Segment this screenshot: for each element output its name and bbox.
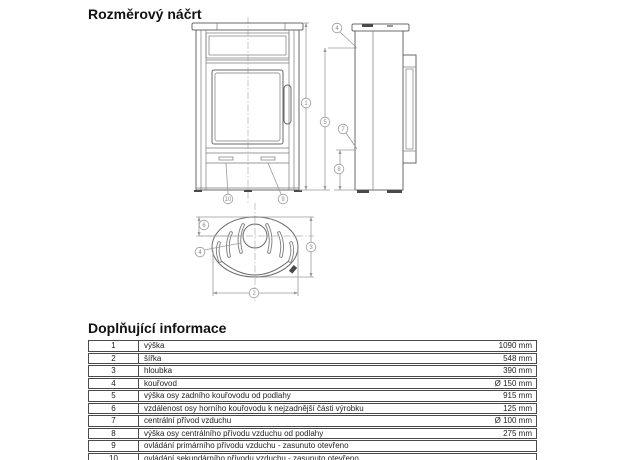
row-value: 125 mm: [503, 404, 536, 413]
row-number: 6: [89, 404, 139, 414]
row-value: 548 mm: [503, 354, 536, 363]
table-row: 1 výška 1090 mm: [88, 340, 537, 352]
info-section-title: Doplňující informace: [88, 320, 226, 336]
flue-opening: [362, 24, 373, 27]
row-label: kouřovod: [139, 379, 495, 388]
callout-secondary-air-control: 10: [223, 163, 233, 204]
side-top-plate: [352, 24, 409, 31]
table-row: 4 kouřovod Ø 150 mm: [88, 378, 537, 390]
row-label: vzdálenost osy horního kouřovodu k nejza…: [139, 404, 503, 413]
front-upper-panel: [206, 33, 289, 58]
callout-primary-air-control: 9: [268, 163, 288, 204]
top-door-handle: [289, 265, 297, 274]
table-row: 9 ovládání primárního přívodu vzduchu - …: [88, 440, 537, 452]
dim-width: 2: [213, 250, 298, 298]
row-number: 3: [89, 366, 139, 376]
row-number: 8: [89, 429, 139, 439]
row-label: ovládání sekundárního přívodu vzduchu - …: [139, 454, 532, 460]
table-row: 10 ovládání sekundárního přívodu vzduchu…: [88, 453, 537, 460]
row-value: 915 mm: [503, 391, 536, 400]
row-number: 1: [89, 341, 139, 351]
row-number: 4: [89, 379, 139, 389]
row-label: výška osy zadního kouřovodu od podlahy: [139, 391, 503, 400]
row-value: 1090 mm: [499, 341, 536, 350]
callout-10-label: 10: [225, 197, 232, 203]
dimensional-drawing: 10 9 1 5 4: [0, 0, 624, 316]
primary-air-control: [261, 157, 275, 160]
side-door-frame: [403, 55, 416, 163]
table-row: 5 výška osy zadního kouřovodu od podlahy…: [88, 390, 537, 402]
table-row: 2 šířka 548 mm: [88, 353, 537, 365]
front-top-plate: [192, 23, 303, 30]
top-view: [196, 203, 314, 302]
front-door-glass: [212, 70, 283, 144]
row-number: 2: [89, 354, 139, 364]
row-label: ovládání primárního přívodu vzduchu - za…: [139, 441, 532, 450]
row-label: výška osy centrálního přívodu vzduchu od…: [139, 429, 503, 438]
door-handle: [284, 85, 291, 124]
row-value: Ø 100 mm: [495, 416, 536, 425]
info-table: 1 výška 1090 mm 2 šířka 548 mm 3 hloubka…: [88, 340, 537, 460]
row-number: 10: [89, 454, 139, 460]
secondary-air-control: [219, 157, 233, 160]
row-value: Ø 150 mm: [495, 379, 536, 388]
table-row: 7 centrální přívod vzduchu Ø 100 mm: [88, 415, 537, 427]
side-view: [352, 24, 416, 193]
row-number: 5: [89, 391, 139, 401]
table-row: 3 hloubka 390 mm: [88, 365, 537, 377]
row-value: 390 mm: [503, 366, 536, 375]
table-row: 6 vzdálenost osy horního kouřovodu k nej…: [88, 403, 537, 415]
row-label: hloubka: [139, 366, 503, 375]
row-label: centrální přívod vzduchu: [139, 416, 495, 425]
row-label: šířka: [139, 354, 503, 363]
table-row: 8 výška osy centrálního přívodu vzduchu …: [88, 428, 537, 440]
side-body: [355, 31, 403, 190]
row-number: 7: [89, 416, 139, 426]
front-view: [192, 17, 303, 203]
row-number: 9: [89, 441, 139, 451]
row-label: výška: [139, 341, 499, 350]
dim-air-inlet-height: 8: [334, 150, 356, 190]
row-value: 275 mm: [503, 429, 536, 438]
callout-central-air: 7: [338, 124, 357, 149]
page: Rozměrový náčrt: [0, 0, 624, 460]
